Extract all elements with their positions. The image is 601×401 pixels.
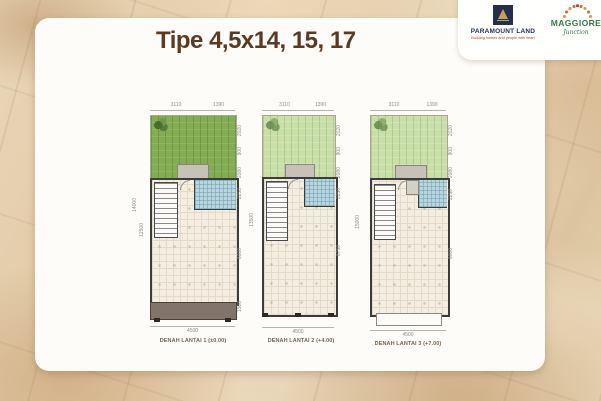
maggiore-logo: MAGGIORE Junction bbox=[544, 4, 601, 36]
maggiore-logo-subname: Junction bbox=[544, 29, 601, 36]
dim-label: 2080 bbox=[238, 167, 243, 178]
garden-area bbox=[150, 115, 237, 180]
dim-label: 2250 bbox=[449, 189, 454, 200]
carport-area bbox=[150, 302, 237, 320]
bush-icon bbox=[265, 118, 280, 131]
floor-post bbox=[328, 313, 334, 317]
dim-label: 12500 bbox=[140, 223, 145, 237]
dim-label: 6000 bbox=[238, 248, 243, 259]
bush-icon bbox=[373, 118, 388, 131]
dim-label: 2020 bbox=[337, 125, 342, 136]
door-swing-icon bbox=[180, 180, 190, 190]
bush-icon bbox=[153, 118, 168, 131]
dim-label: 1390 bbox=[418, 103, 446, 108]
dim-label: 2020 bbox=[238, 125, 243, 136]
dimension-line bbox=[370, 110, 446, 111]
dim-label: 1390 bbox=[202, 103, 235, 108]
indoor-area bbox=[370, 178, 450, 317]
carport-post bbox=[154, 318, 160, 322]
dimension-line bbox=[150, 110, 235, 111]
dim-label: 6000 bbox=[449, 248, 454, 259]
dim-label: 3110 bbox=[150, 103, 202, 108]
carport-post bbox=[225, 318, 231, 322]
stairs-area bbox=[154, 182, 178, 238]
bathroom-area bbox=[304, 179, 335, 207]
gold-triangle-icon bbox=[498, 9, 508, 19]
dim-label: 3110 bbox=[262, 103, 307, 108]
void-garden-area bbox=[262, 115, 336, 179]
door-swing-icon bbox=[288, 179, 298, 189]
dim-label: 3110 bbox=[370, 103, 418, 108]
marble-background: Tipe 4,5x14, 15, 17 PARAMOUNT LAND Build… bbox=[0, 0, 601, 401]
plan1-caption: DENAH LANTAI 1 (±0.00) bbox=[146, 338, 240, 344]
dim-label: 2080 bbox=[337, 167, 342, 178]
stairs-area bbox=[374, 184, 396, 240]
dim-label: 4500 bbox=[370, 333, 446, 338]
floor-post bbox=[295, 313, 301, 317]
floor-post bbox=[262, 313, 268, 317]
dim-label: 900 bbox=[337, 147, 342, 155]
dim-label: 6750 bbox=[337, 245, 342, 256]
balcony-area bbox=[376, 313, 442, 326]
gold-base-line bbox=[497, 20, 509, 21]
stairs-area bbox=[266, 181, 288, 241]
page-title: Tipe 4,5x14, 15, 17 bbox=[156, 27, 356, 55]
roof-garden-area bbox=[370, 115, 448, 180]
dim-label: 900 bbox=[449, 147, 454, 155]
dimension-line bbox=[150, 326, 235, 327]
dim-label: 4500 bbox=[262, 330, 334, 335]
plan2-caption: DENAH LANTAI 2 (+4.00) bbox=[260, 338, 342, 344]
paramount-logo-name: PARAMOUNT LAND bbox=[468, 28, 538, 35]
dimension-line bbox=[262, 110, 334, 111]
dim-label: 2020 bbox=[449, 125, 454, 136]
dim-label: 14000 bbox=[133, 198, 138, 212]
bathroom-area bbox=[194, 180, 236, 210]
dim-label: 15000 bbox=[356, 215, 361, 229]
paramount-land-logo: PARAMOUNT LAND Building homes and people… bbox=[468, 5, 538, 40]
dim-label: 2080 bbox=[449, 167, 454, 178]
dimension-line bbox=[370, 330, 446, 331]
dim-label: 2250 bbox=[337, 188, 342, 199]
plan1-plot bbox=[150, 115, 235, 322]
dim-label: 1500 bbox=[238, 301, 243, 312]
paramount-logo-icon bbox=[493, 5, 513, 25]
bathroom-area bbox=[418, 180, 447, 208]
floor-plan-2: 3110 1390 13500 2020 900 2080 2250 6750 … bbox=[260, 103, 342, 351]
dimension-line bbox=[262, 327, 334, 328]
logo-panel: PARAMOUNT LAND Building homes and people… bbox=[458, 0, 601, 60]
dim-label: 13500 bbox=[250, 213, 255, 227]
floor-plan-3: 3110 1390 15000 2020 900 2080 2250 6000 … bbox=[366, 103, 450, 355]
maggiore-logo-name: MAGGIORE bbox=[544, 18, 601, 28]
dim-label: 4500 bbox=[150, 329, 235, 334]
dim-label: 900 bbox=[238, 147, 243, 155]
maggiore-sunburst-icon bbox=[544, 4, 601, 18]
dim-label: 1390 bbox=[307, 103, 334, 108]
plan2-plot bbox=[262, 115, 334, 317]
plan3-plot bbox=[370, 115, 446, 325]
dim-label: 2250 bbox=[238, 188, 243, 199]
indoor-area bbox=[150, 178, 239, 306]
floor-plan-1: 3110 1390 14000 12500 2020 900 2080 2250… bbox=[146, 103, 240, 351]
indoor-area bbox=[262, 177, 338, 317]
plan3-caption: DENAH LANTAI 3 (+7.00) bbox=[366, 341, 450, 347]
paramount-logo-tagline: Building homes and people with heart bbox=[470, 35, 537, 40]
door-swing-icon bbox=[398, 180, 408, 190]
